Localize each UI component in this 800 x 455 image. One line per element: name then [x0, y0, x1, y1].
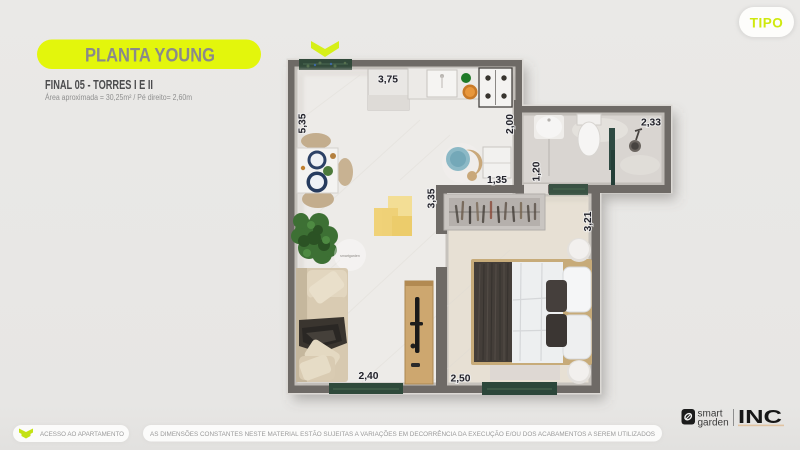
svg-text:PLANTA YOUNG: PLANTA YOUNG — [85, 45, 215, 67]
svg-text:FINAL 05 - TORRES I E II: FINAL 05 - TORRES I E II — [45, 78, 153, 92]
svg-text:2,50: 2,50 — [450, 374, 470, 385]
svg-text:Área aproximada = 30,25m² / Pé: Área aproximada = 30,25m² / Pé direito= … — [45, 93, 192, 102]
svg-text:2,40: 2,40 — [358, 371, 378, 382]
svg-text:1,20: 1,20 — [532, 161, 543, 181]
svg-text:2,00: 2,00 — [505, 114, 516, 134]
svg-text:5,35: 5,35 — [298, 113, 309, 133]
svg-text:1,35: 1,35 — [487, 175, 507, 186]
svg-text:ACESSO AO APARTAMENTO: ACESSO AO APARTAMENTO — [40, 431, 124, 438]
svg-text:smartgarden: smartgarden — [340, 254, 360, 258]
svg-text:2,33: 2,33 — [641, 118, 661, 129]
svg-text:INC: INC — [738, 407, 782, 427]
svg-text:AS DIMENSÕES CONSTANTES NESTE: AS DIMENSÕES CONSTANTES NESTE MATERIAL E… — [150, 429, 655, 438]
svg-text:3,21: 3,21 — [583, 211, 594, 231]
svg-text:3,75: 3,75 — [378, 75, 398, 86]
svg-text:garden: garden — [698, 418, 729, 429]
svg-text:TIPO: TIPO — [750, 16, 784, 31]
svg-text:3,35: 3,35 — [427, 188, 438, 208]
